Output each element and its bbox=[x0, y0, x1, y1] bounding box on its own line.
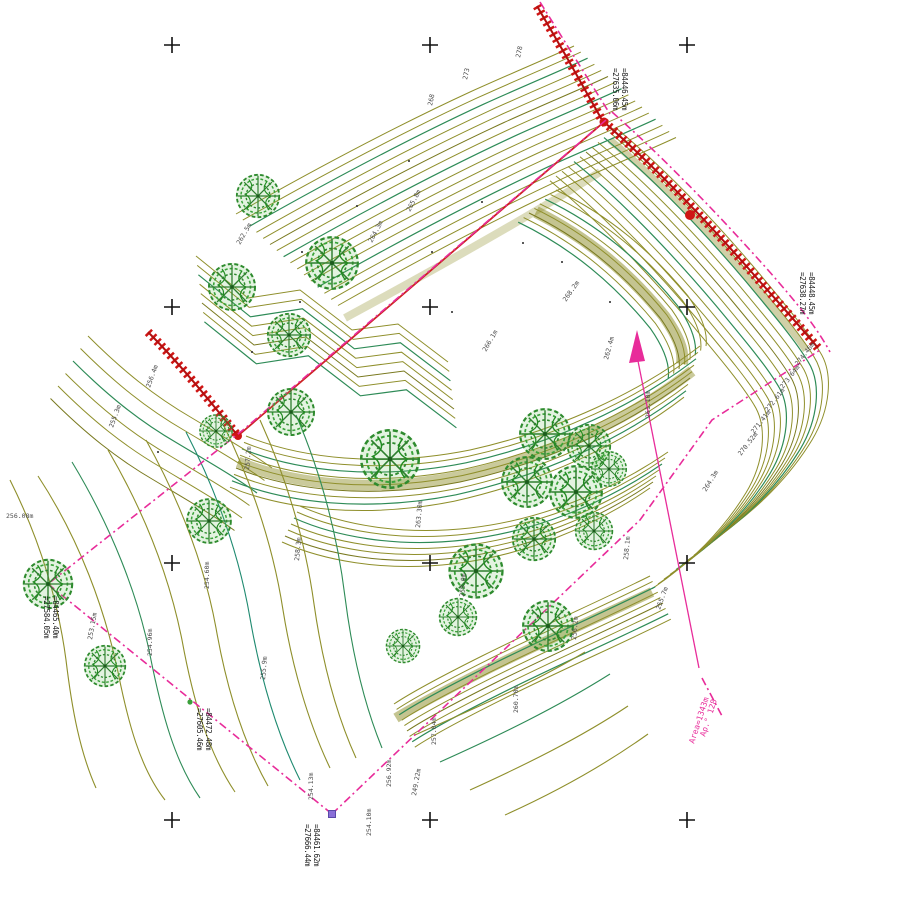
contour-line bbox=[204, 322, 456, 428]
spot-point bbox=[451, 311, 453, 313]
station-easting: =27638.27m bbox=[798, 272, 807, 315]
station-top-right: =27635.06m=84446.45m bbox=[611, 68, 629, 111]
grid-cross-icon bbox=[422, 812, 438, 828]
contour-elevation-label: 261.10m bbox=[644, 391, 652, 418]
contour-elevation-label: 273 bbox=[461, 67, 471, 80]
contour-line bbox=[246, 346, 700, 459]
station-northing: =84465.40m bbox=[51, 596, 60, 639]
contour-elevation-label: 254.10m bbox=[365, 809, 373, 836]
contour-line bbox=[394, 576, 650, 704]
contour-elevation-label: 256.92m bbox=[385, 760, 393, 787]
contour-bundles bbox=[51, 46, 829, 747]
contour-elevation-label: 266.1m bbox=[481, 329, 500, 353]
tree-icon bbox=[83, 644, 127, 688]
contour-line bbox=[202, 303, 454, 409]
parcel-label-group: Αρ.° 128Area=1343m bbox=[687, 696, 719, 745]
contour-line bbox=[397, 581, 653, 709]
survey-drawing-canvas[interactable]: 278273268274.46m273.64m272.61m271.41m270… bbox=[0, 0, 900, 919]
station-northing: =84472.48m bbox=[204, 708, 213, 751]
contour-elevation-label: 256.08m bbox=[6, 512, 33, 520]
contour-elevation-label: 255.9m bbox=[259, 656, 269, 680]
grid-cross-icon bbox=[422, 37, 438, 53]
boundary-edge-nw bbox=[48, 120, 606, 584]
grid-cross-icon bbox=[164, 555, 180, 571]
contour-line bbox=[236, 46, 574, 214]
vertex-marker-icon bbox=[329, 811, 336, 818]
spot-point bbox=[609, 301, 611, 303]
contour-elevation-label: 258.1m bbox=[622, 536, 632, 560]
contour-elevation-label: 262.5m bbox=[235, 222, 254, 246]
tree-icon bbox=[185, 497, 233, 545]
spot-point bbox=[408, 160, 410, 162]
contour-elevation-label: 268.2m bbox=[561, 279, 581, 303]
station-northing: =84446.45m bbox=[620, 68, 629, 111]
station-sw-corner: =27584.05m=84465.40m bbox=[42, 596, 60, 639]
boundary-edge-se bbox=[332, 350, 820, 814]
station-northing: =84448.45m bbox=[807, 272, 816, 315]
contour-elevation-label: 258.3m bbox=[293, 537, 303, 561]
survey-drawing-svg: 278273268274.46m273.64m272.61m271.41m270… bbox=[0, 0, 900, 919]
contour-elevation-label: 265.8m bbox=[405, 188, 423, 213]
station-easting: =27605.46m bbox=[195, 708, 204, 751]
spot-point bbox=[522, 242, 524, 244]
station-left: =27605.46m=84472.48m bbox=[187, 699, 213, 751]
contour-elevation-label: 256.4m bbox=[144, 364, 160, 389]
tree-icon bbox=[438, 597, 478, 637]
point-marker-icon bbox=[187, 699, 192, 704]
station-easting: =27635.06m bbox=[611, 68, 620, 111]
grid-cross-icon bbox=[164, 299, 180, 315]
tree-icon bbox=[304, 235, 361, 292]
contour-elevation-label: 278 bbox=[514, 45, 524, 58]
spot-point bbox=[356, 205, 358, 207]
station-easting: =27584.05m bbox=[42, 596, 51, 639]
spot-point bbox=[481, 201, 483, 203]
contour-line bbox=[203, 312, 455, 418]
contour-elevation-label: 268 bbox=[426, 93, 436, 106]
contour-elevation-label: 257.84m bbox=[430, 718, 438, 745]
contour-elevation-label: 260.70m bbox=[512, 686, 520, 713]
contour-elevation-label: 270.52m bbox=[736, 431, 759, 458]
spot-point bbox=[431, 251, 433, 253]
tree-icon bbox=[511, 516, 557, 562]
contour-elevation-label: 262.4m bbox=[602, 336, 616, 361]
trees-layer bbox=[21, 173, 627, 688]
contour-elevation-label: 254.96m bbox=[146, 629, 154, 656]
contour-elevation-label: 264.3m bbox=[701, 469, 720, 493]
tree-icon bbox=[266, 387, 317, 438]
grid-cross-icon bbox=[164, 812, 180, 828]
contour-elevation-label: 254.13m bbox=[307, 773, 315, 800]
spot-point bbox=[301, 251, 303, 253]
contour-elevation-label: 263.30m bbox=[414, 500, 424, 528]
contour-elevation-label: 255.3m bbox=[107, 404, 123, 429]
contour-line bbox=[250, 58, 588, 226]
boundary-edge-top bbox=[540, 2, 610, 114]
contour-line bbox=[81, 349, 265, 481]
spot-point bbox=[251, 351, 253, 353]
contour-line bbox=[529, 213, 679, 369]
contour-elevation-label: 254.60m bbox=[203, 562, 211, 589]
grid-cross-icon bbox=[422, 299, 438, 315]
station-right: =27638.27m=84448.45m bbox=[798, 272, 816, 315]
spot-point bbox=[299, 301, 301, 303]
station-easting: =27666.44m bbox=[303, 824, 312, 867]
grid-cross-icon bbox=[164, 37, 180, 53]
tree-icon bbox=[385, 628, 421, 664]
contour-elevation-label: 249.22m bbox=[410, 768, 423, 796]
red-node bbox=[685, 210, 695, 220]
grid-cross-icon bbox=[679, 37, 695, 53]
spot-point bbox=[157, 451, 159, 453]
grid-cross-icon bbox=[679, 812, 695, 828]
station-south-vertex: =27666.44m=84461.62m bbox=[303, 811, 336, 867]
contour-elevation-label: 255.7m bbox=[654, 586, 670, 611]
boundary-edge-ne bbox=[612, 112, 830, 352]
spot-point bbox=[561, 261, 563, 263]
tree-icon bbox=[198, 413, 233, 448]
grid-cross-icon bbox=[422, 555, 438, 571]
contour-bottomright bbox=[415, 652, 648, 815]
station-northing: =84461.62m bbox=[312, 824, 321, 867]
